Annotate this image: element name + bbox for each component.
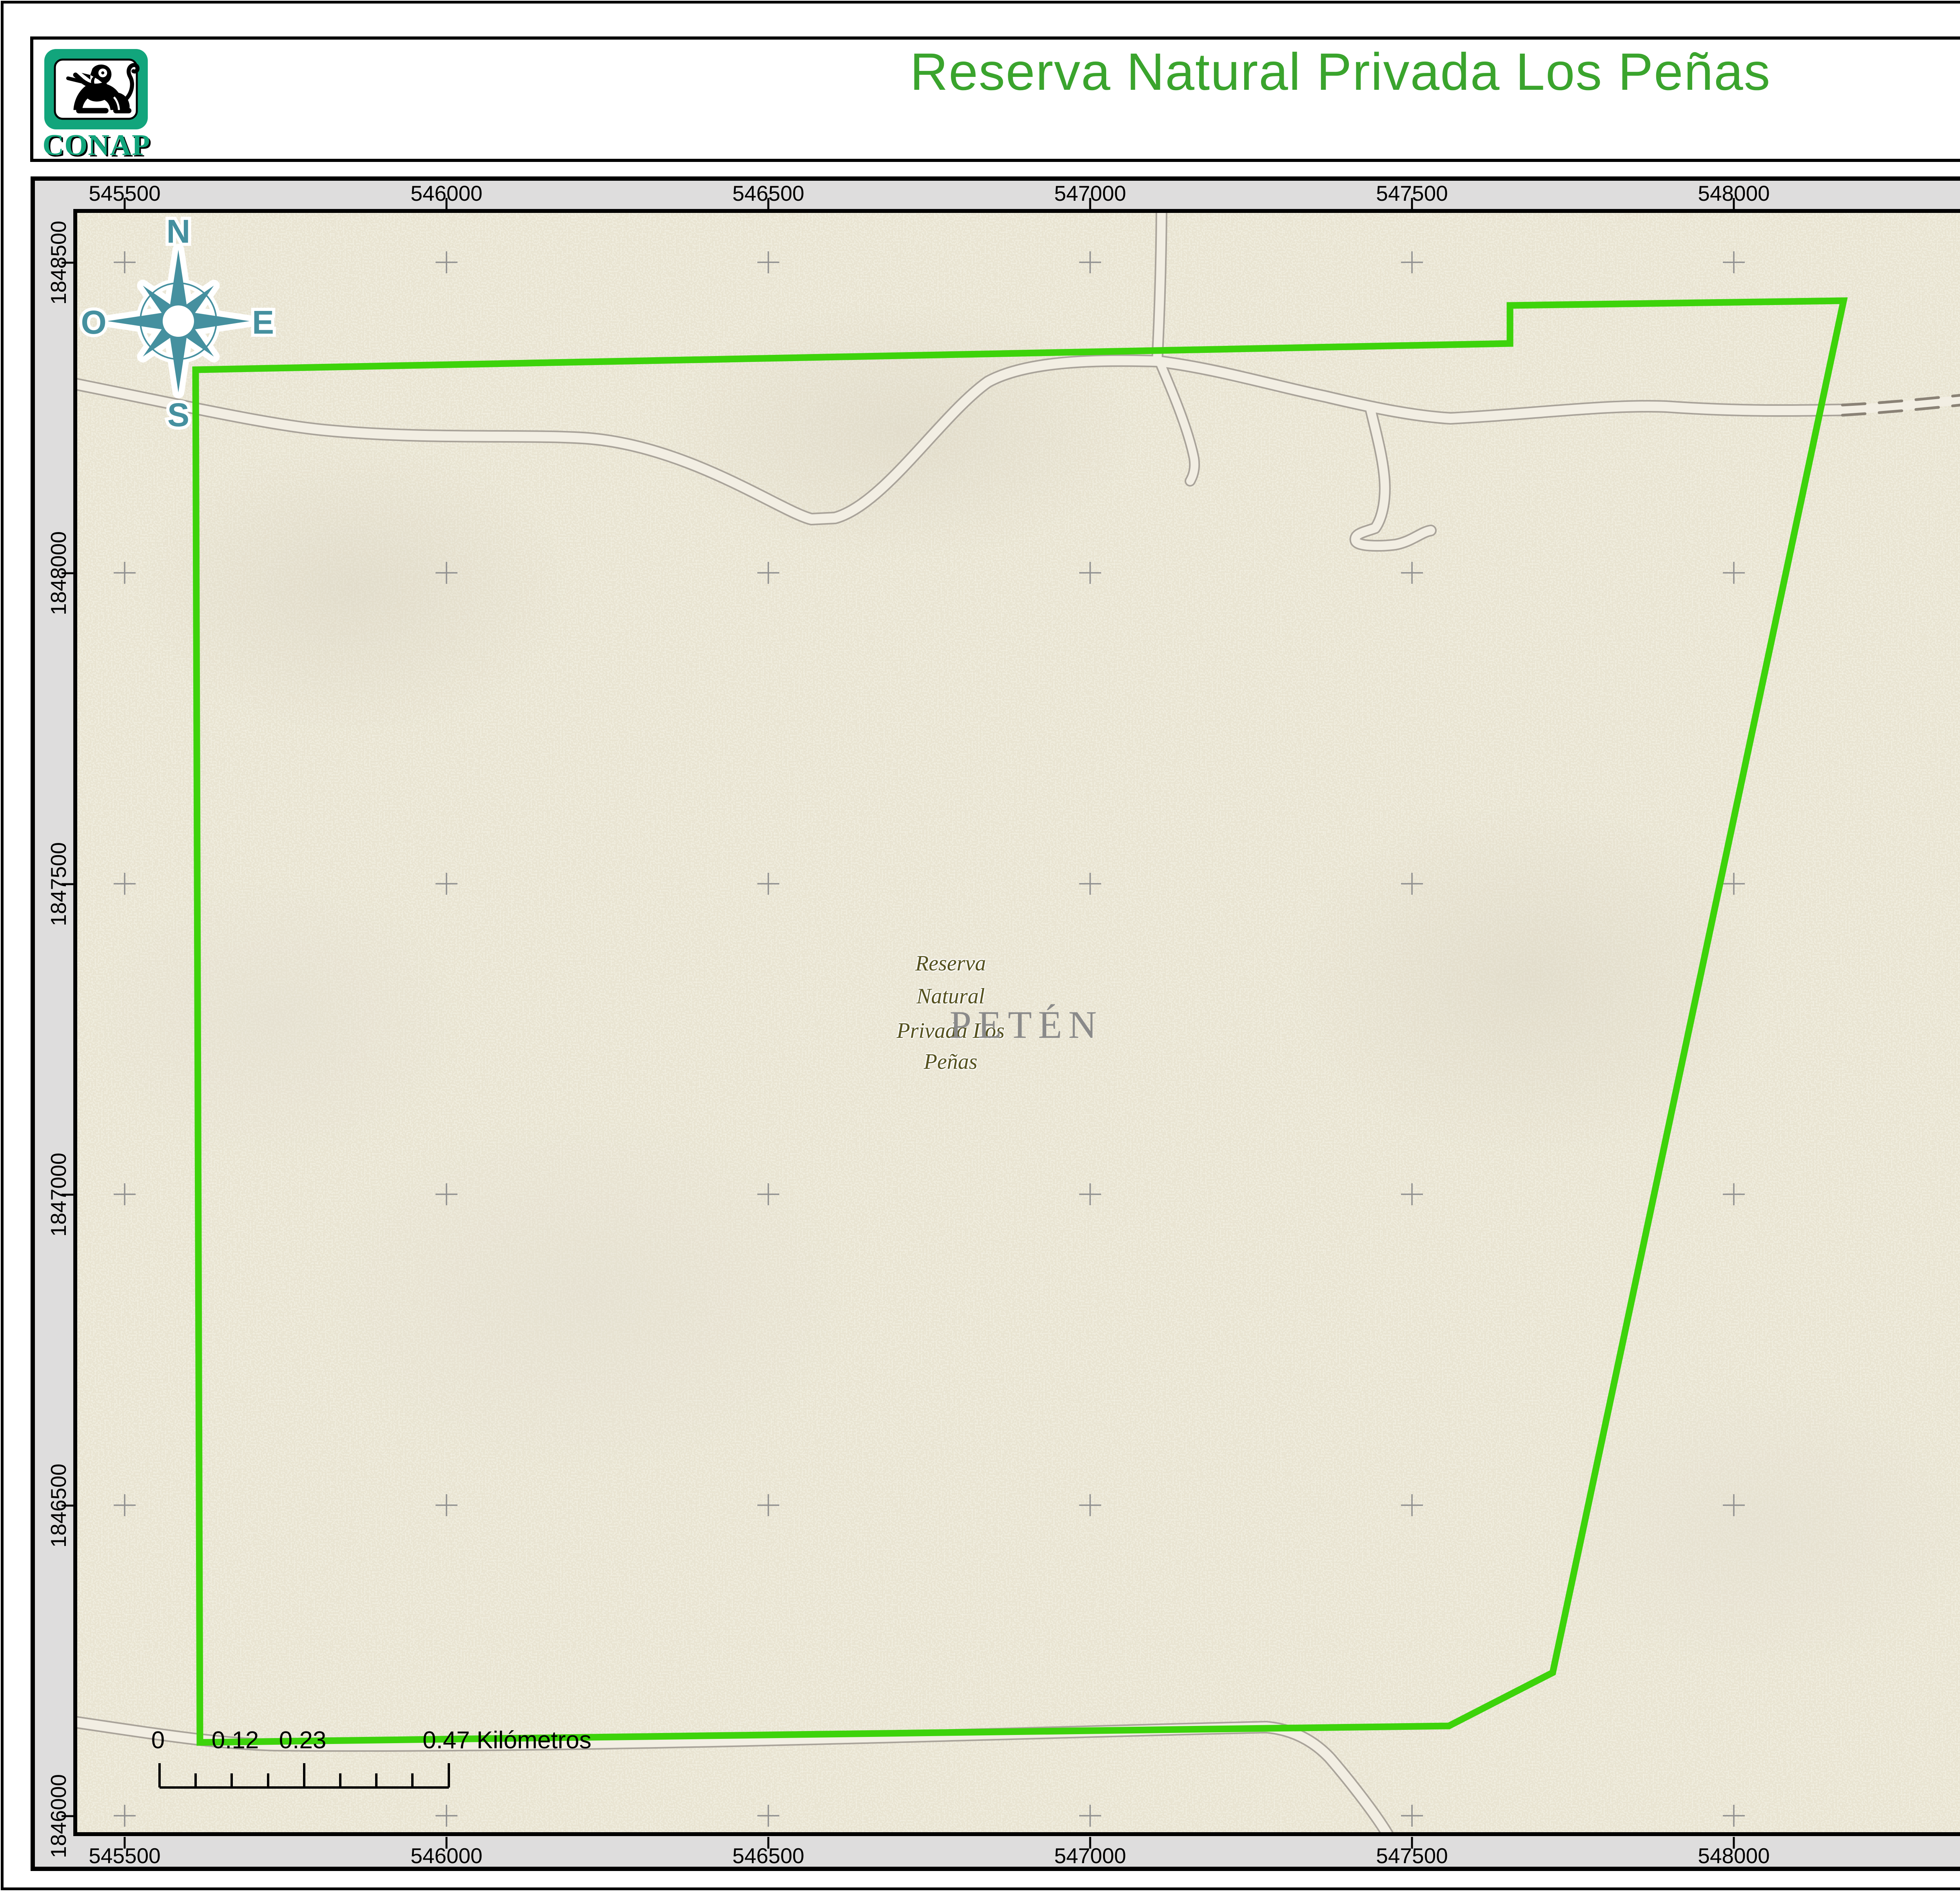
svg-text:547500: 547500 [1376, 1844, 1448, 1868]
svg-text:547000: 547000 [1054, 1844, 1126, 1868]
svg-text:547000: 547000 [1054, 181, 1126, 205]
svg-text:1846000: 1846000 [46, 1774, 71, 1858]
svg-text:546000: 546000 [410, 1844, 483, 1868]
svg-text:546000: 546000 [410, 181, 483, 205]
svg-text:546500: 546500 [732, 181, 804, 205]
svg-text:1847000: 1847000 [46, 1153, 71, 1237]
svg-text:545500: 545500 [89, 1844, 161, 1868]
svg-text:547500: 547500 [1376, 181, 1448, 205]
svg-text:1846500: 1846500 [46, 1464, 71, 1548]
svg-text:1848000: 1848000 [46, 531, 71, 615]
svg-text:1848500: 1848500 [46, 221, 71, 305]
svg-text:1847500: 1847500 [46, 842, 71, 926]
svg-text:546500: 546500 [732, 1844, 804, 1868]
svg-text:548000: 548000 [1698, 181, 1770, 205]
svg-text:545500: 545500 [89, 181, 161, 205]
svg-text:548000: 548000 [1698, 1844, 1770, 1868]
